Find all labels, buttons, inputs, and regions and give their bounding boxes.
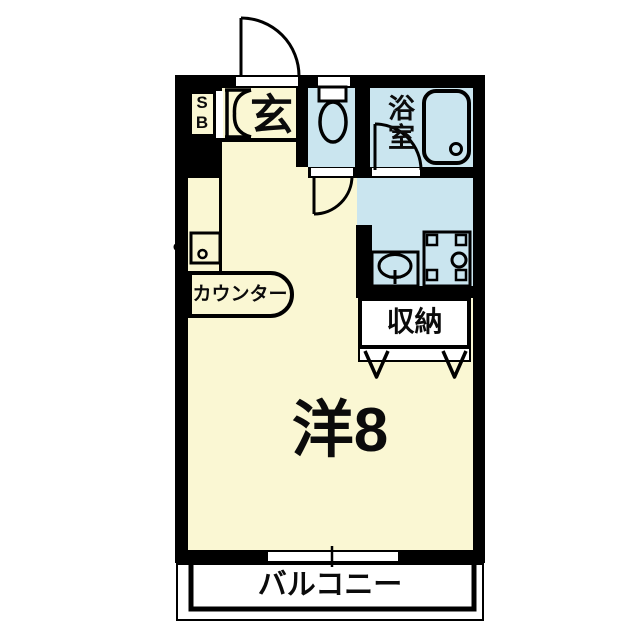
fixtures-layer	[0, 0, 640, 640]
counter-label: カウンター	[188, 285, 292, 304]
bathroom-label: 浴室	[385, 94, 412, 152]
storage-label: 収納	[358, 308, 471, 336]
shoebox-label: SB	[192, 93, 212, 133]
floor-plan: SB 玄 浴室 カウンター 収納 洋8 バルコニー	[0, 0, 640, 640]
entrance-door-icon	[241, 18, 299, 76]
main-room-label: 洋8	[240, 400, 440, 462]
entrance-label: 玄	[250, 95, 293, 138]
balcony-label: バルコニー	[176, 571, 484, 600]
toilet-icon	[319, 87, 346, 142]
bathtub-icon	[424, 91, 469, 163]
washing-machine-icon	[424, 232, 470, 286]
closet-door-icon	[365, 351, 466, 377]
stove-icon	[174, 233, 221, 263]
toilet-door-icon	[314, 176, 352, 214]
washbasin-icon	[372, 252, 418, 286]
shoebox-door-icon	[225, 89, 251, 138]
